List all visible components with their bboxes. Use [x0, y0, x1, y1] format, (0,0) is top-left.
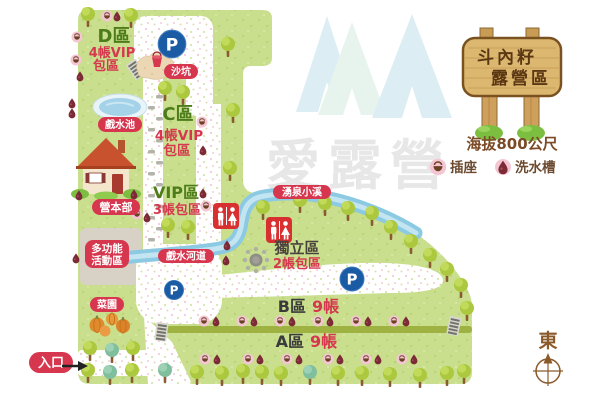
zone-b-count: 9帳 — [312, 297, 339, 316]
sink-legend-label: 洗水槽 — [515, 159, 556, 176]
zone-indep-name: 獨立區 — [273, 239, 319, 257]
fire-pit — [243, 247, 269, 273]
restroom-icon — [213, 203, 239, 229]
sign-title-line1: 斗內籽 — [477, 47, 537, 68]
sink-legend-icon — [495, 159, 511, 175]
zone-indep-caption: 2帳包區 — [273, 256, 321, 272]
water-channel-label: 戲水河道 — [166, 250, 206, 263]
outlet-legend-label: 插座 — [450, 159, 477, 176]
compass: 東 — [533, 329, 563, 386]
pool-label: 戲水池 — [105, 118, 135, 131]
zone-vip-name: VIP區 — [153, 183, 199, 202]
outlet-legend-icon — [430, 159, 447, 176]
multi-area-label-line2: 活動區 — [91, 254, 123, 267]
zone-d-caption2: 包區 — [93, 58, 119, 74]
zone-a-count: 9帳 — [310, 332, 337, 351]
compass-east-label: 東 — [538, 329, 557, 352]
campground-map: 愛露營 — [0, 0, 600, 400]
svg-text:P: P — [347, 271, 358, 289]
sign-title-line2: 露營區 — [491, 68, 551, 89]
elevation-text: 海拔800公尺 — [466, 135, 557, 153]
zone-vip-caption: 3帳包區 — [153, 202, 201, 218]
multi-area-label-line1: 多功能 — [91, 242, 123, 255]
entrance-label: 入口 — [38, 356, 64, 371]
zone-d-name: D區 — [98, 26, 131, 47]
parking-marker: P — [158, 30, 186, 58]
zone-c-name: C區 — [162, 104, 193, 125]
stairs-icon — [154, 322, 168, 342]
compass-arrow-icon — [544, 353, 553, 364]
camp-sign: 斗內籽 露營區 — [463, 28, 561, 141]
zone-b-name: B區 — [278, 297, 306, 316]
campground-map-page: 愛露營 — [0, 0, 600, 400]
svg-text:P: P — [170, 283, 179, 297]
zone-c-caption2: 包區 — [164, 142, 191, 159]
spring-stream-label: 湧泉小溪 — [282, 186, 323, 199]
svg-text:P: P — [166, 35, 179, 55]
water-pool — [93, 94, 147, 120]
garden-label: 菜園 — [96, 298, 117, 311]
parking-marker: P — [340, 267, 364, 291]
zone-a-name: A區 — [276, 332, 304, 351]
sandpit-label: 沙坑 — [171, 65, 191, 78]
hq-label: 營本部 — [100, 200, 133, 214]
zone-c-caption1: 4帳VIP — [155, 127, 203, 144]
parking-marker: P — [164, 280, 183, 299]
tent-watermark — [296, 14, 452, 118]
